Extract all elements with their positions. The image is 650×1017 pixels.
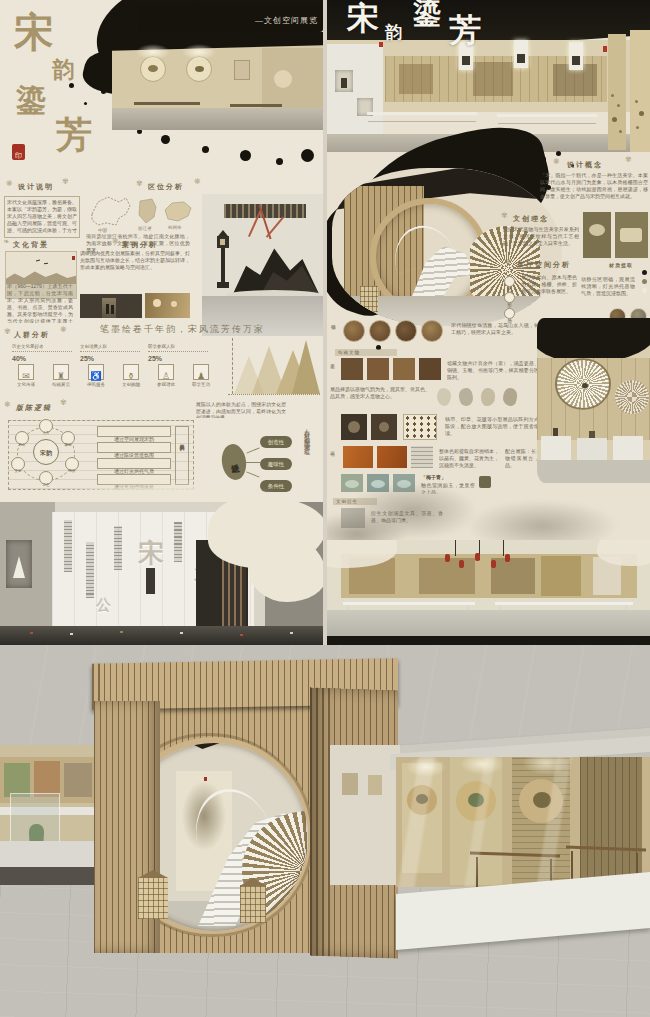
connector-line [246,447,259,453]
map-caption: 浙江省 [138,226,152,231]
calligraphy-hall-render: 宋 花 公 [0,502,323,645]
audience-stat: 历史文化爱好者 40% [12,344,72,362]
vase-silhouette [553,428,558,436]
audience-header: 人群分析 [14,330,50,340]
chart-axis [232,338,233,394]
space-key: 形 [504,292,515,303]
distant-frame [342,773,358,795]
cluster-node: 美学 [11,457,25,471]
ink-spatter-dots [92,72,95,75]
gallery-render-bottom [327,540,650,645]
bronze-mirror-photo [421,320,443,342]
concept-header: 设计概念 [567,160,603,170]
case-header: 案例分析 [122,240,158,250]
red-seal [603,46,607,52]
white-counter [0,841,96,867]
fan-painting [274,70,292,88]
mural-patch [419,558,475,594]
console-table [134,102,200,105]
location-header: 区位分析 [148,182,184,192]
display-alcove [262,48,323,108]
logic-bar: 通过陈设营造氛围 [97,442,171,453]
painting-motif [195,66,204,72]
pillar-icon: ♜ [57,371,65,381]
logic-header: 版陈逻辑 [16,403,52,413]
bronze-mirror-photo [343,320,365,342]
gallery-floor [327,610,650,638]
jade-figurine [459,388,473,406]
product-item [620,228,642,242]
audience-icon-cell: ✉ 文化传播 [10,364,42,387]
left-gallery-wall [0,745,96,885]
title-char: 宋 [14,12,54,52]
cluster-node: 人文 [39,419,53,433]
people-icon-box: ♟ [193,364,209,380]
display-plinth [577,438,607,460]
case-photo-gold [145,293,190,318]
flower-icon: ❋ [505,258,512,266]
exhibit-render-top [112,32,323,130]
coin-grid-photo [403,414,437,440]
title-char: 宋 [347,2,379,34]
red-pendant-lamp [445,554,450,562]
flower-icon: ✾ [62,178,69,186]
stat-label: 历史文化爱好者 [12,344,72,352]
artifact-photo [419,358,441,380]
wall-char-gong: 公 [96,596,111,615]
node-label: 器物 [65,443,72,447]
wall-painting [234,60,250,80]
node-label: 人文 [43,431,50,435]
row-c-body: 钱币、印章、花版等小型展品以阵列方式陈设，配合放大图版与说明，便于观者细读。 [445,416,539,442]
cluster-center-label: 宋韵 [40,449,52,456]
wheelchair-icon: ♿ [90,371,101,381]
ink-spatter-dots [527,150,530,153]
display-niche [335,70,353,92]
pouch-icon: ⚱ [127,371,135,381]
envelope-icon: ✉ [22,371,30,381]
row-b-body2: 展品择选以器物气韵为先，观其形、赏其色、品其质，感受宋人造物之心。 [330,386,430,408]
lantern-pole [221,248,225,282]
seal-char: 印 [15,152,22,159]
mountain-chart [228,336,320,400]
sketch-photo [411,446,433,468]
title-char: 韵 [385,24,402,41]
display-table [495,602,633,605]
icon-label: 研学互动 [185,382,217,387]
lamp-drop-line [455,540,456,556]
icon-label: 参观游览 [150,382,182,387]
cluster-center: 宋韵 [33,439,59,465]
banner-motif [517,54,525,63]
logic-result-box: 达到宋韵展现的目的 [175,426,189,485]
icon-box: ♜ [53,364,69,380]
icon-label: 文创购物 [115,382,147,387]
quality-pill: 创造性 [260,436,292,448]
space-header: 展厅空间分析 [517,260,571,270]
table-top [566,846,646,852]
lantern-base [217,282,229,288]
red-pendant-lamp [491,560,496,568]
celadon-label: 「梅子青」 [421,474,446,480]
paper-fan-wheel [555,358,611,410]
audience-icon-cell: ♜ 馆藏展示 [45,364,77,387]
mural-patch [473,62,513,96]
bronze-mirror-photo [369,320,391,342]
audience-stat: 文创消费人群 25% [80,344,140,362]
row-b-body: 馆藏文物共计百余件（套），涵盖瓷器、铜镜、玉雕、书画等门类，择其精要分区陈列。 [447,360,539,386]
wall-char-song: 宋 [138,536,164,571]
artifact-photo [367,358,389,380]
red-seal [72,256,75,260]
logic-bar: 通过空间展现宋韵 [97,426,171,437]
people-icon: ♟ [197,371,205,381]
calligraphy-column [174,522,182,562]
dark-base [0,867,96,885]
culture-body: 宋（960—1279）上承五代十国，下启元朝，分北宋与南宋。宋人崇尚简约淡雅，瓷… [7,283,73,323]
logic-bar: 通过互动增强体验 [97,474,171,485]
quality-pill: 趣味性 [260,458,292,470]
lamp-drop-line [503,540,504,556]
jade-figurine [481,388,495,406]
row-tag: 瓷器 [330,360,335,384]
painting-blotch [533,792,551,808]
paper-fan-wheel [615,380,649,414]
calligraphy-column [86,542,94,598]
cluster-node: 器物 [61,431,75,445]
display-counter [367,112,477,115]
scroll-figures [611,94,614,97]
red-pendant-lamp [459,560,464,568]
pill-label: 趣味性 [268,461,285,467]
case-body: 调研国内优秀文创展陈案例，分析其空间叙事、灯光氛围与互动体验之长，结合宋韵主题加… [80,250,190,292]
audience-icon-cell: ♙ 参观游览 [150,364,182,387]
silk-texture-photo [377,446,407,468]
hangzhou-map [162,200,194,224]
render-floor [537,460,650,483]
design-note-header: 设计说明 [18,182,54,192]
space-key: 质 [504,308,515,319]
logic-note: 展陈以人的体验为起点，围绕宋韵文化层层递进，由感知而至认同，最终转化为文创消费与… [196,402,286,418]
china-map-outline [86,194,132,228]
node-label: 美学 [15,469,22,473]
concept-body: 「宋」既指一个朝代，亦是一种生活美学。本案以宋代山水与月洞门为意象，以木质格栅围… [540,172,648,212]
icon-label: 馆藏展示 [45,382,77,387]
slatted-window [224,204,306,218]
idea-body: 围绕宋代器物与生活美学开发系列文创，将传统纹样与当代工艺相融，让宋韵之美走入日常… [503,226,579,260]
connector-line [246,471,259,477]
case-photo-dark [80,294,142,318]
product-item [589,224,605,236]
cluster-node: 陈设 [65,457,79,471]
logic-vertical-note: 人群对宋韵展现需求定位 [302,424,311,508]
title-char: 韵 [52,58,74,80]
floral-motif [379,422,389,432]
banner-motif [572,56,580,65]
space-key: 色 [504,276,515,287]
spotlight-glow [182,44,216,60]
design-note-body: 宋代文化底蕴深厚，雅俗兼备。本案以「宋韵鎏芳」为题，撷取宋人四艺与器物之美，将文… [7,199,77,235]
scroll-painting-tall [608,34,626,150]
right-poster-panel: 宋 韵 鎏 芳 ❋ 设计概念 ✾ 「宋」既指一个朝代，亦是一种生活美学。本案以宋… [327,0,650,645]
title-char: 芳 [449,14,481,46]
olive-seal-square [479,476,491,488]
hanging-sign [146,568,155,594]
calligraphy-quote: 笔墨绘卷千年韵，宋风流芳传万家 [100,323,322,336]
render-floor [112,108,323,130]
door-slat-screen [222,558,246,628]
red-pendant-lamp [475,553,480,561]
ink-ceiling [537,318,650,362]
audience-icon-cell: ♟ 研学互动 [185,364,217,387]
mural-painting [34,761,60,797]
stone-lantern [214,230,232,296]
chart-baseline [228,394,320,395]
display-plinth [541,436,571,460]
calligraphy-column [114,526,122,570]
node-label: 陈设 [69,469,76,473]
stat-label: 文创消费人群 [80,344,140,352]
logic-bar: 通过灯光烘托气质 [97,458,171,469]
wheelchair-icon-box: ♿ [88,364,104,380]
title-char: 鎏 [413,0,441,28]
rock-garden-render [202,194,323,336]
strip-label: 馆藏文物 [338,350,360,355]
flower-icon: ❋ [112,238,119,246]
stat-label: 研学参观人群 [148,344,208,352]
mural-painting [4,763,30,797]
niche-object [13,556,25,578]
design-note-box: 宋代文化底蕴深厚，雅俗兼备。本案以「宋韵鎏芳」为题，撷取宋人四艺与器物之美，将文… [4,196,80,238]
zhejiang-map [136,197,158,225]
calligraphy-column [64,520,72,572]
top-banner-bar: —文创空间展览 [138,6,323,32]
audience-stat: 研学参观人群 25% [148,344,208,362]
distant-frame [368,775,382,795]
white-ink-splash [248,540,323,602]
pill-label: 创造性 [268,439,285,445]
left-poster-panel: —文创空间展览 宋 韵 鎏 芳 印 [0,0,323,645]
idea-header: 文创理念 [513,214,549,224]
icon-label: 文化传播 [10,382,42,387]
mural-panel [541,556,581,596]
banner-subtitle: —文创空间展览 [255,15,318,26]
flower-icon: ✾ [60,399,67,407]
audience-icon-cell: ⚱ 文创购物 [115,364,147,387]
pill-label: 条件性 [268,483,285,489]
design-board: —文创空间展览 宋 韵 鎏 芳 印 [0,0,650,1017]
row-tag: 铜镜 [331,320,336,344]
flower-icon: ❋ [60,326,67,334]
jade-figurine [437,388,451,406]
mural-painting [64,763,92,797]
bird-mark [44,263,48,265]
banner-light [514,40,528,68]
floor-glints [30,632,33,634]
figure-silhouette [106,304,109,314]
display-counter [497,114,597,117]
painting-motif [148,65,158,72]
collection-strip: 馆藏文物 [335,349,397,356]
white-display-wall [327,44,383,144]
row-d-body: 整体色彩提取自宋画绢本，以赭石、藤黄、花青为主，沉稳而不失温度。 [439,448,499,470]
red-pendant-lamp [505,554,510,562]
person-icon: ♙ [162,371,170,381]
exhibition-hall-render [0,645,650,1017]
floral-motif [348,421,360,433]
connector-line [246,462,260,463]
product-photo [615,212,648,258]
lantern-light [220,239,225,245]
lantern-box [240,885,266,923]
icon-label: 便民服务 [80,382,112,387]
node-label: 工艺 [43,483,50,487]
product-photo [583,212,611,258]
flower-icon: ❋ [4,401,11,409]
fan-hall-render [537,318,650,483]
title-char: 鎏 [16,86,46,116]
flower-icon: ✾ [136,180,143,188]
jade-figurine [503,388,517,406]
red-seal: 印 [12,144,25,160]
display-table [343,602,475,605]
fan-hub [582,383,588,389]
flower-icon: ✾ [4,328,11,336]
artifact-photo [341,358,363,380]
space-body1: 展厅以米白、原木与墨色为主调，格栅、拱桥、折扇等元素串联各展区。 [521,274,577,318]
stat-value: 25% [148,355,208,362]
flower-icon: ❋ [6,180,13,188]
red-seal [379,42,383,47]
flower-icon: ✾ [501,212,508,220]
stat-value: 40% [12,355,72,362]
dark-floor-strip [327,636,650,645]
glass-display-wall [396,757,650,887]
figure-silhouette [111,305,114,314]
bronze-mirror-photo [395,320,417,342]
title-char: 芳 [56,116,92,152]
stat-value: 25% [80,355,140,362]
space-body2: 动静分区明确，观展流线清晰，灯光烘托器物气质，营造沉浸氛围。 [581,276,635,306]
plum-branch [266,217,284,238]
floral-panel-photo [341,414,367,440]
bird-mark [36,260,40,262]
banner-motif [462,56,470,65]
cluster-node: 工艺 [39,471,53,485]
pouch-icon-box: ⚱ [123,364,139,380]
spotlight-glow [136,44,170,60]
row-a-body: 宋代铜镜纹饰清雅，花鸟山水入镜，铸工精巧，映照宋人日常之美。 [451,322,539,346]
lamp-glow [171,301,177,307]
palette-dots [642,270,647,275]
audience-icon-cell: ♿ 便民服务 [80,364,112,387]
niche-artifact [341,78,347,88]
materials-header: 材质提取 [609,262,633,268]
vase-silhouette [589,431,595,438]
cluster-node: 风俗 [15,431,29,445]
lack-label: 缺乏 [228,457,239,459]
scroll-figures [635,100,638,103]
mural-patch [399,64,433,94]
scroll-painting-tall [630,30,650,152]
map-caption: 杭州市 [168,225,182,230]
quality-pill: 条件性 [260,480,292,492]
flower-icon: ✾ [625,156,632,164]
display-plinth [613,436,643,460]
flower-icon: ❋ [194,178,201,186]
node-label: 风俗 [19,443,26,447]
flower-icon: ❋ [553,158,560,166]
console-table [230,104,282,107]
lantern-box [138,877,168,919]
icon-box: ✉ [18,364,34,380]
lack-ellipse: 缺乏 [220,443,249,482]
floral-panel-photo [371,414,397,440]
culture-header: 文化背景 [13,240,49,250]
mural-patch [491,558,535,594]
hall-floor [0,626,323,645]
person-icon-box: ♙ [158,364,174,380]
wall-niche [6,540,32,588]
banner-light [569,42,583,70]
lamp-glow [153,299,161,307]
artifact-photo [393,358,415,380]
logic-flow-box: 宋韵 人文 风俗 器物 美学 陈设 工艺 通过空间展现宋韵 通过陈设营造氛围 通… [8,420,194,490]
row-tag: 书画 [330,448,335,470]
flower-icon: ❧ [3,238,10,246]
silk-texture-photo [343,446,373,468]
